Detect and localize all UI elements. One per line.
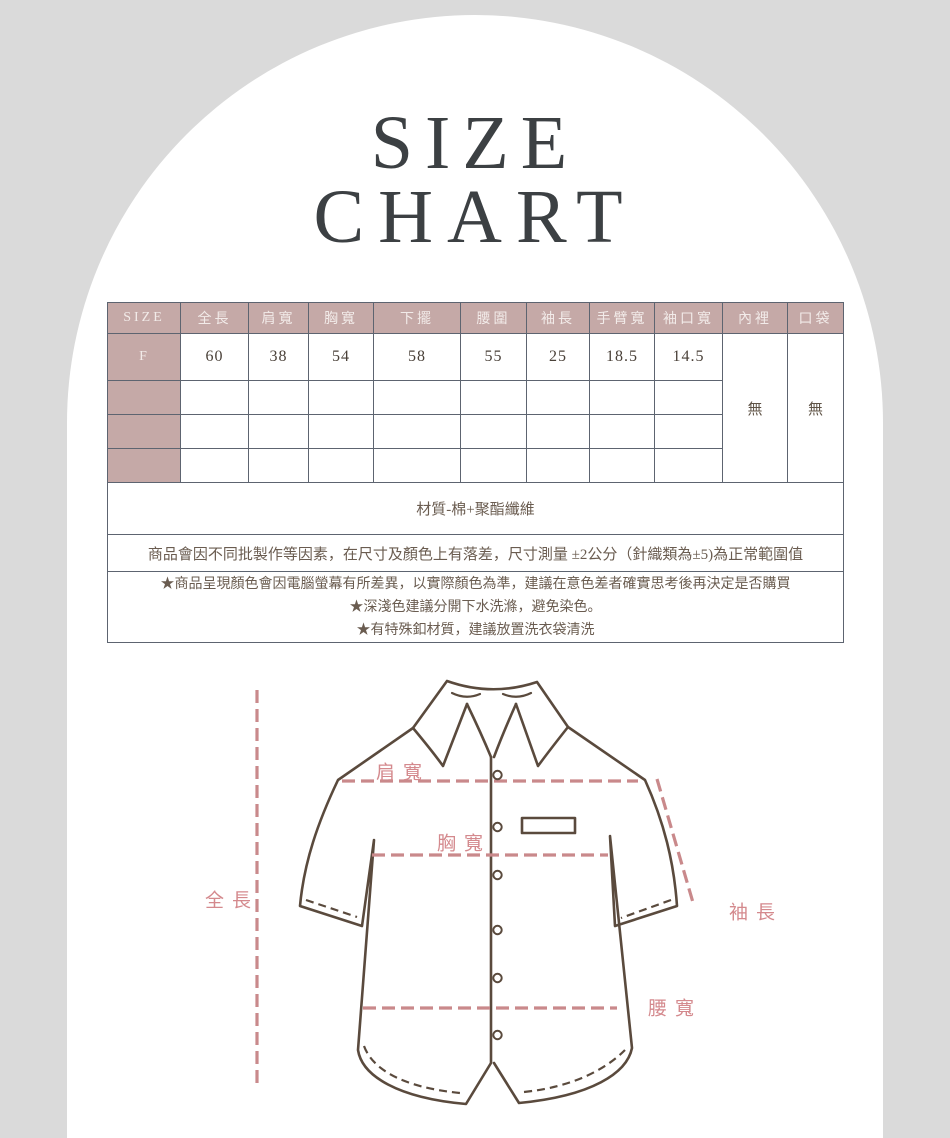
material-text: 材質-棉+聚酯纖維 [108, 483, 844, 535]
pocket-cell: 無 [788, 334, 844, 483]
column-header-sleeve: 袖長 [527, 303, 590, 334]
title-line-size: SIZE [0, 106, 950, 180]
value-cell [655, 415, 723, 449]
chest-width-label: 胸寬 [437, 829, 491, 856]
value-cell: 14.5 [655, 334, 723, 381]
table-row-f: F 60 38 54 58 55 25 18.5 14.5 無 無 [108, 334, 844, 381]
value-cell [249, 381, 309, 415]
value-cell [527, 449, 590, 483]
value-cell [309, 381, 374, 415]
waist-width-label: 腰寬 [648, 994, 702, 1021]
table-row-notes: ★商品呈現顏色會因電腦螢幕有所差異，以實際顏色為準，建議在意色差者確實思考後再決… [108, 572, 844, 643]
value-cell [461, 449, 527, 483]
column-header-size: SIZE [108, 303, 181, 334]
table-row-notice: 商品會因不同批製作等因素，在尺寸及顏色上有落差，尺寸測量 ±2公分（針織類為±5… [108, 535, 844, 572]
column-header-chest: 胸寬 [309, 303, 374, 334]
value-cell [249, 449, 309, 483]
value-cell: 60 [181, 334, 249, 381]
value-cell [181, 449, 249, 483]
notice-text: 商品會因不同批製作等因素，在尺寸及顏色上有落差，尺寸測量 ±2公分（針織類為±5… [108, 535, 844, 572]
size-cell: F [108, 334, 181, 381]
value-cell: 55 [461, 334, 527, 381]
value-cell [374, 381, 461, 415]
column-header-length: 全長 [181, 303, 249, 334]
value-cell [655, 381, 723, 415]
value-cell [655, 449, 723, 483]
table-header-row: SIZE 全長 肩寬 胸寬 下擺 腰圍 袖長 手臂寬 袖口寬 內裡 口袋 [108, 303, 844, 334]
shoulder-width-label: 肩寬 [376, 758, 430, 785]
table-row-material: 材質-棉+聚酯纖維 [108, 483, 844, 535]
value-cell: 25 [527, 334, 590, 381]
full-length-label: 全長 [205, 886, 259, 913]
lining-cell: 無 [723, 334, 788, 483]
column-header-pocket: 口袋 [788, 303, 844, 334]
value-cell [461, 381, 527, 415]
sleeve-length-label: 袖長 [729, 898, 783, 925]
value-cell [527, 381, 590, 415]
note-line-1: ★商品呈現顏色會因電腦螢幕有所差異，以實際顏色為準，建議在意色差者確實思考後再決… [108, 573, 843, 596]
column-header-shoulder: 肩寬 [249, 303, 309, 334]
size-cell [108, 381, 181, 415]
value-cell [590, 381, 655, 415]
title-line-chart: CHART [0, 180, 950, 254]
value-cell: 58 [374, 334, 461, 381]
value-cell [590, 415, 655, 449]
value-cell: 38 [249, 334, 309, 381]
value-cell [249, 415, 309, 449]
note-line-3: ★有特殊釦材質，建議放置洗衣袋清洗 [108, 619, 843, 642]
column-header-cuff: 袖口寬 [655, 303, 723, 334]
value-cell [527, 415, 590, 449]
value-cell [461, 415, 527, 449]
notes-cell: ★商品呈現顏色會因電腦螢幕有所差異，以實際顏色為準，建議在意色差者確實思考後再決… [108, 572, 844, 643]
value-cell [309, 449, 374, 483]
size-cell [108, 415, 181, 449]
value-cell [374, 449, 461, 483]
size-cell [108, 449, 181, 483]
value-cell [181, 381, 249, 415]
value-cell: 54 [309, 334, 374, 381]
value-cell [181, 415, 249, 449]
value-cell [374, 415, 461, 449]
page-title: SIZE CHART [0, 106, 950, 254]
size-chart-page: SIZE CHART SIZE 全長 肩寬 胸寬 下擺 腰圍 袖長 手臂寬 袖口… [0, 0, 950, 1138]
size-table: SIZE 全長 肩寬 胸寬 下擺 腰圍 袖長 手臂寬 袖口寬 內裡 口袋 F 6… [107, 302, 844, 643]
value-cell [309, 415, 374, 449]
column-header-arm: 手臂寬 [590, 303, 655, 334]
column-header-hem: 下擺 [374, 303, 461, 334]
note-line-2: ★深淺色建議分開下水洗滌，避免染色。 [108, 596, 843, 619]
column-header-waist: 腰圍 [461, 303, 527, 334]
value-cell: 18.5 [590, 334, 655, 381]
column-header-lining: 內裡 [723, 303, 788, 334]
value-cell [590, 449, 655, 483]
